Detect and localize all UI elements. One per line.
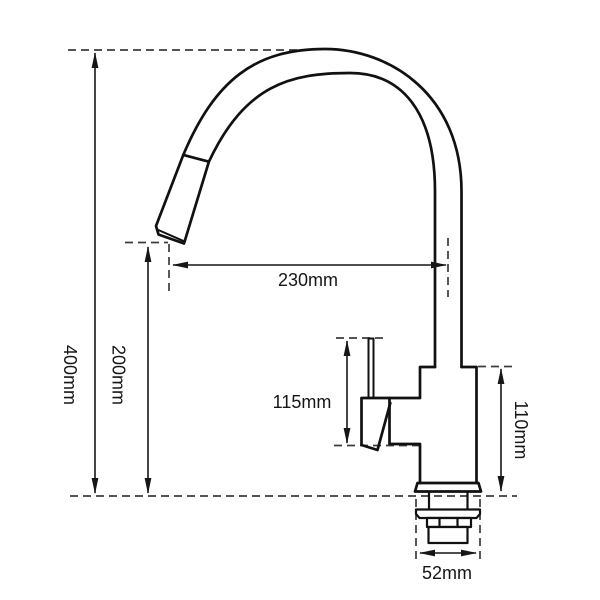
spout-inner-edge xyxy=(209,73,435,367)
dimension-lines xyxy=(95,53,501,553)
mounting-nut xyxy=(427,518,471,527)
mounting-plate xyxy=(416,510,480,519)
handle-rod xyxy=(369,339,374,399)
drawing-svg: 400mm 200mm 230mm 115mm 110mm 52mm xyxy=(0,0,600,600)
faucet-dimension-drawing: 400mm 200mm 230mm 115mm 110mm 52mm xyxy=(0,0,600,600)
base-width-label: 52mm xyxy=(422,563,472,583)
body-height-label: 110mm xyxy=(511,401,531,460)
spout-height-label: 200mm xyxy=(109,345,129,405)
handle-height-label: 115mm xyxy=(273,392,332,412)
base-flange xyxy=(415,483,481,492)
spout-reach-label: 230mm xyxy=(278,270,338,290)
overall-height-label: 400mm xyxy=(60,345,80,405)
mounting-neck xyxy=(429,492,468,510)
spray-head xyxy=(156,155,209,244)
faucet-outline xyxy=(156,49,481,543)
spout-outer-edge xyxy=(183,49,461,367)
handle-lever xyxy=(362,398,391,450)
body-outline xyxy=(390,367,477,483)
threaded-shank xyxy=(429,527,468,543)
